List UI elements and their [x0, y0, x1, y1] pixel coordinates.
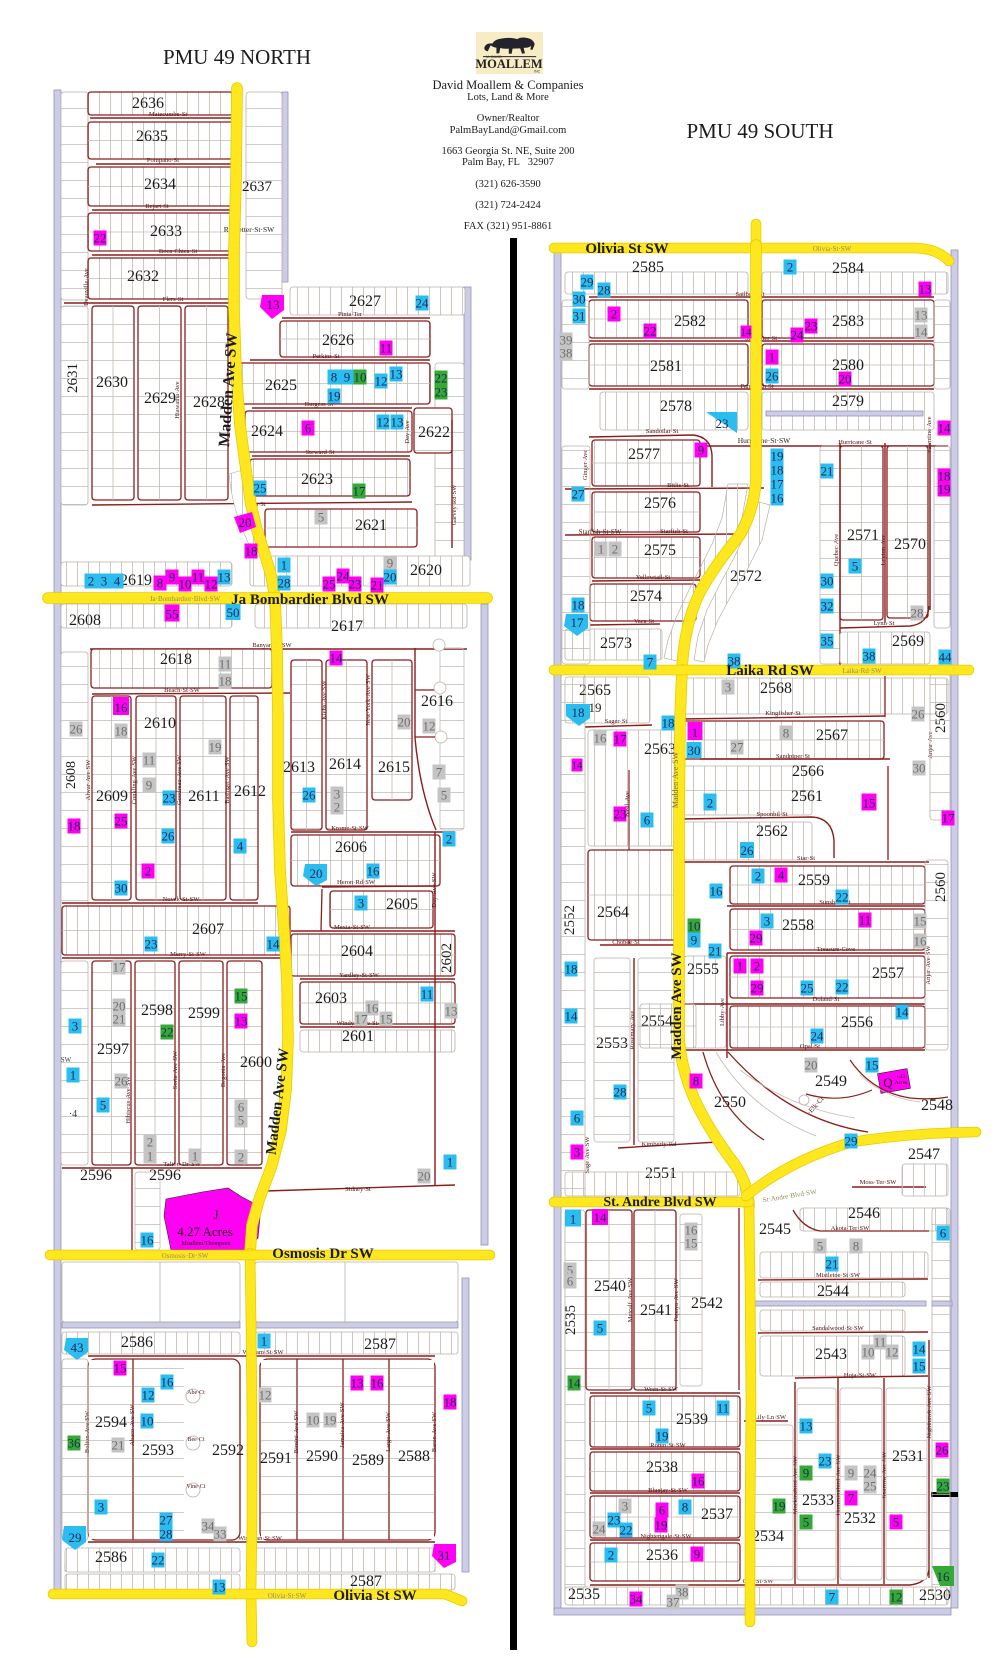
svg-text:30: 30	[913, 760, 926, 775]
svg-text:16: 16	[161, 1374, 175, 1389]
svg-text:2: 2	[147, 1134, 154, 1149]
svg-text:28: 28	[614, 1084, 627, 1099]
svg-text:16: 16	[371, 1375, 385, 1390]
svg-text:Papaya·Ave·SW: Papaya·Ave·SW	[673, 1278, 680, 1322]
svg-text:26: 26	[741, 843, 755, 858]
svg-text:14: 14	[938, 420, 952, 435]
svg-text:29: 29	[751, 980, 764, 995]
svg-text:2582: 2582	[674, 313, 706, 330]
svg-text:26: 26	[912, 706, 926, 721]
svg-text:2586: 2586	[95, 1549, 127, 1566]
svg-text:2556: 2556	[841, 1014, 873, 1031]
svg-text:16: 16	[366, 1000, 380, 1015]
svg-text:2637: 2637	[242, 179, 273, 195]
svg-text:10: 10	[688, 918, 701, 933]
svg-text:20: 20	[418, 1168, 431, 1183]
svg-text:29: 29	[750, 930, 763, 945]
svg-text:27: 27	[572, 486, 586, 501]
svg-text:2: 2	[612, 541, 619, 556]
svg-text:8: 8	[693, 1073, 700, 1088]
svg-text:15: 15	[114, 1360, 127, 1375]
svg-text:2578: 2578	[660, 398, 692, 415]
svg-text:2590: 2590	[306, 1448, 338, 1465]
svg-text:·4: ·4	[69, 1109, 77, 1120]
svg-text:1: 1	[570, 1211, 577, 1226]
svg-text:2545: 2545	[759, 1221, 791, 1238]
svg-text:14: 14	[741, 326, 753, 338]
svg-text:Ja·Bombardier·Blvd·SW: Ja·Bombardier·Blvd·SW	[150, 595, 221, 603]
svg-text:2549: 2549	[815, 1073, 847, 1090]
svg-text:4: 4	[237, 838, 244, 853]
svg-text:29: 29	[581, 274, 594, 289]
svg-text:13: 13	[267, 297, 280, 312]
svg-text:5: 5	[803, 1514, 810, 1529]
svg-text:Acres: Acres	[895, 1080, 908, 1086]
svg-text:9: 9	[848, 1465, 855, 1480]
svg-text:1: 1	[692, 725, 699, 740]
svg-text:2557: 2557	[872, 965, 904, 982]
svg-text:Wren·St·SW: Wren·St·SW	[644, 1386, 679, 1393]
svg-text:11: 11	[192, 569, 205, 584]
svg-text:2603: 2603	[315, 990, 347, 1007]
svg-text:Bee·Ct: Bee·Ct	[188, 1437, 205, 1443]
svg-text:8: 8	[783, 725, 790, 740]
svg-text:Leyton·Ave: Leyton·Ave	[880, 534, 887, 565]
svg-text:14: 14	[330, 650, 344, 665]
svg-text:17: 17	[614, 731, 628, 746]
svg-text:2621: 2621	[355, 517, 387, 534]
svg-text:6: 6	[659, 1502, 666, 1517]
svg-text:MOALLEM: MOALLEM	[475, 57, 543, 71]
svg-text:Sandpiper·St: Sandpiper·St	[776, 753, 810, 760]
svg-text:Jamaica·Ave·SW: Jamaica·Ave·SW	[339, 1401, 346, 1447]
svg-text:Hiawatha·Ave: Hiawatha·Ave	[174, 381, 181, 419]
svg-text:13: 13	[351, 1375, 364, 1390]
svg-text:2632: 2632	[127, 268, 159, 285]
svg-text:Abe·Ct: Abe·Ct	[187, 1390, 205, 1396]
svg-text:19: 19	[324, 1412, 337, 1427]
svg-text:2608: 2608	[69, 612, 101, 629]
svg-text:31: 31	[573, 308, 586, 323]
svg-text:26: 26	[115, 1073, 129, 1088]
svg-text:2589: 2589	[352, 1452, 384, 1469]
svg-text:18: 18	[444, 1394, 457, 1409]
svg-text:St. Andre Blvd SW: St. Andre Blvd SW	[603, 1195, 716, 1210]
svg-text:2539: 2539	[676, 1411, 708, 1428]
svg-text:Libby·Ave: Libby·Ave	[719, 998, 726, 1026]
svg-text:Opal·St: Opal·St	[800, 1043, 820, 1050]
svg-text:24: 24	[416, 295, 430, 310]
svg-text:2575: 2575	[644, 542, 676, 559]
svg-text:26: 26	[162, 828, 176, 843]
svg-text:12: 12	[142, 1387, 155, 1402]
svg-text:19: 19	[771, 448, 784, 463]
svg-text:3: 3	[358, 895, 365, 910]
svg-text:2541: 2541	[640, 1302, 672, 1319]
svg-text:2532: 2532	[844, 1510, 876, 1527]
svg-text:New·York·Ave·SW: New·York·Ave·SW	[365, 673, 372, 725]
svg-text:19: 19	[656, 1428, 669, 1443]
svg-text:5: 5	[597, 1320, 604, 1335]
svg-text:13: 13	[213, 1579, 226, 1594]
svg-text:2602: 2602	[439, 943, 455, 973]
svg-text:2599: 2599	[188, 1005, 220, 1022]
svg-text:Laika Rd SW: Laika Rd SW	[726, 663, 814, 679]
svg-text:14: 14	[594, 1210, 608, 1225]
svg-text:16: 16	[692, 1473, 706, 1488]
svg-text:Bluejay·St·SW: Bluejay·St·SW	[648, 1487, 689, 1494]
svg-text:25: 25	[254, 480, 267, 495]
svg-text:2: 2	[707, 795, 714, 810]
svg-text:16: 16	[914, 933, 928, 948]
svg-text:Sidney·St: Sidney·St	[345, 1186, 371, 1193]
svg-text:2581: 2581	[650, 358, 682, 375]
svg-text:22: 22	[435, 370, 448, 385]
svg-text:18: 18	[771, 462, 784, 477]
svg-text:2620: 2620	[410, 562, 442, 579]
svg-text:13: 13	[235, 1013, 248, 1028]
svg-text:2: 2	[754, 958, 761, 973]
svg-text:Palm Bay, FL 32907: Palm Bay, FL 32907	[462, 157, 554, 168]
svg-text:3: 3	[622, 1498, 629, 1513]
svg-text:12: 12	[886, 1344, 899, 1359]
svg-text:19: 19	[328, 388, 341, 403]
svg-text:Spoonbil·St: Spoonbil·St	[756, 811, 787, 818]
svg-text:2598: 2598	[141, 1002, 173, 1019]
svg-text:38: 38	[863, 648, 876, 663]
svg-text:18: 18	[565, 961, 578, 976]
svg-text:16: 16	[937, 1569, 951, 1584]
svg-text:Yellowtail·St: Yellowtail·St	[636, 574, 671, 581]
svg-text:28: 28	[160, 1526, 173, 1541]
svg-text:19: 19	[209, 739, 222, 754]
svg-text:5: 5	[852, 558, 859, 573]
svg-text:43: 43	[71, 1340, 84, 1355]
svg-text:33: 33	[214, 1526, 227, 1541]
svg-text:13: 13	[390, 366, 403, 381]
svg-text:2610: 2610	[144, 715, 176, 732]
svg-text:Metcalf·Ave·SW: Metcalf·Ave·SW	[627, 1277, 634, 1323]
svg-text:Olivia St SW: Olivia St SW	[333, 1588, 416, 1604]
svg-text:15: 15	[380, 1011, 393, 1026]
svg-text:2624: 2624	[251, 423, 283, 440]
svg-text:2570: 2570	[894, 536, 926, 553]
svg-text:2593: 2593	[142, 1442, 174, 1459]
svg-text:10: 10	[179, 576, 192, 591]
svg-text:15: 15	[685, 1235, 698, 1250]
svg-text:Merry·St·SW: Merry·St·SW	[170, 951, 207, 958]
svg-text:2619: 2619	[120, 572, 152, 589]
svg-text:2564: 2564	[597, 904, 629, 921]
svg-text:55: 55	[166, 606, 179, 621]
svg-text:9: 9	[387, 555, 394, 570]
svg-text:Madden·Ave·SW: Madden·Ave·SW	[671, 751, 680, 808]
svg-text:23: 23	[819, 1453, 832, 1468]
svg-text:Nightengale·St·SW: Nightengale·St·SW	[640, 1533, 692, 1540]
svg-text:8: 8	[331, 369, 338, 384]
svg-text:Steward·St: Steward·St	[306, 449, 335, 456]
svg-text:2542: 2542	[691, 1295, 723, 1312]
svg-text:Krome·St·SW: Krome·St·SW	[331, 825, 369, 832]
svg-text:2537: 2537	[701, 1506, 733, 1523]
svg-text:38: 38	[560, 345, 573, 360]
svg-text:5: 5	[893, 1514, 900, 1529]
svg-text:2634: 2634	[144, 176, 176, 193]
svg-text:David Moallem & Companies: David Moallem & Companies	[432, 78, 583, 92]
svg-text:2608: 2608	[64, 761, 79, 789]
svg-text:29: 29	[845, 1133, 858, 1148]
svg-text:2546: 2546	[848, 1205, 880, 1222]
svg-text:5: 5	[817, 1238, 824, 1253]
svg-text:1: 1	[261, 1333, 268, 1348]
svg-text:Boca·Chica·St: Boca·Chica·St	[159, 248, 197, 255]
svg-text:Moss·Ter·SW: Moss·Ter·SW	[860, 1179, 898, 1186]
svg-text:Pinta·Ter: Pinta·Ter	[338, 311, 363, 318]
svg-text:2: 2	[608, 1547, 615, 1562]
svg-text:Owner/Realtor: Owner/Realtor	[477, 113, 540, 124]
svg-text:4: 4	[778, 867, 785, 882]
svg-text:2562: 2562	[756, 823, 788, 840]
svg-text:1: 1	[281, 557, 288, 572]
svg-text:Bitlis·St: Bitlis·St	[667, 482, 689, 489]
svg-text:20: 20	[310, 866, 323, 881]
svg-text:2597: 2597	[97, 1041, 129, 1058]
svg-text:21: 21	[821, 463, 834, 478]
svg-text:Flers·St: Flers·St	[163, 296, 184, 303]
svg-text:9: 9	[698, 442, 705, 457]
svg-text:2591: 2591	[260, 1450, 292, 1467]
svg-text:2560: 2560	[933, 872, 949, 902]
svg-text:Mistletoe·St·SW: Mistletoe·St·SW	[816, 1272, 861, 1279]
svg-text:2604: 2604	[341, 943, 373, 960]
svg-text:22: 22	[836, 979, 849, 994]
svg-text:28: 28	[278, 575, 291, 590]
svg-text:23: 23	[163, 790, 176, 805]
svg-text:Alwar·Ave·SW: Alwar·Ave·SW	[85, 759, 92, 801]
svg-text:10: 10	[862, 1344, 875, 1359]
svg-text:J: J	[213, 1207, 218, 1222]
svg-text:1: 1	[737, 958, 744, 973]
svg-text:11: 11	[380, 340, 393, 355]
svg-text:35: 35	[821, 633, 834, 648]
svg-text:30: 30	[115, 880, 128, 895]
svg-text:11: 11	[859, 912, 872, 927]
svg-text:12: 12	[205, 576, 218, 591]
svg-text:Vine·Ct: Vine·Ct	[187, 1484, 206, 1490]
svg-text:Abaco·Ave·SW: Abaco·Ave·SW	[129, 1403, 136, 1445]
svg-text:1: 1	[147, 1148, 154, 1163]
svg-text:22: 22	[836, 889, 849, 904]
svg-text:14: 14	[913, 1341, 927, 1356]
svg-text:7: 7	[436, 764, 443, 779]
svg-text:15: 15	[914, 913, 927, 928]
svg-text:2: 2	[787, 259, 794, 274]
svg-text:2573: 2573	[600, 635, 632, 652]
svg-text:14: 14	[896, 1004, 910, 1019]
svg-text:36: 36	[68, 1435, 82, 1450]
svg-text:Beach·St·SW: Beach·St·SW	[164, 687, 201, 694]
svg-text:15: 15	[913, 1358, 926, 1373]
svg-text:2617: 2617	[331, 618, 363, 635]
svg-text:Hurricane·St·SW: Hurricane·St·SW	[738, 436, 791, 445]
svg-text:2536: 2536	[646, 1547, 678, 1564]
svg-text:22: 22	[152, 1552, 165, 1567]
svg-text:2592: 2592	[212, 1442, 244, 1459]
svg-text:20: 20	[398, 714, 411, 729]
svg-text:Deauville·Ave: Deauville·Ave	[83, 268, 90, 306]
svg-text:22: 22	[644, 323, 657, 338]
svg-text:Novak·St·SW: Novak·St·SW	[163, 896, 201, 903]
svg-text:9: 9	[169, 569, 176, 584]
svg-text:24: 24	[593, 1521, 607, 1536]
svg-text:19: 19	[773, 1498, 786, 1513]
svg-text:16: 16	[710, 883, 724, 898]
svg-text:25: 25	[323, 576, 336, 591]
svg-text:24: 24	[811, 1028, 825, 1043]
svg-text:2630: 2630	[96, 374, 128, 391]
svg-text:Lily·Ln·SW: Lily·Ln·SW	[754, 1414, 787, 1421]
svg-text:Soria·Ave·SW: Soria·Ave·SW	[172, 1050, 179, 1089]
svg-text:2567: 2567	[816, 727, 848, 744]
svg-text:16: 16	[141, 1232, 155, 1247]
svg-text:Yardley·St·SW: Yardley·St·SW	[339, 972, 380, 979]
svg-text:21: 21	[826, 1256, 839, 1271]
svg-text:6: 6	[305, 420, 312, 435]
svg-text:2601: 2601	[342, 1028, 374, 1045]
svg-text:Lots, Land & More: Lots, Land & More	[467, 92, 549, 103]
svg-text:2: 2	[446, 831, 453, 846]
svg-text:Sandalwood·St·SW: Sandalwood·St·SW	[812, 1325, 865, 1332]
svg-text:3: 3	[72, 1018, 79, 1033]
svg-text:2559: 2559	[798, 872, 830, 889]
svg-text:Conkling·Ave·SW: Conkling·Ave·SW	[131, 755, 138, 804]
svg-text:2607: 2607	[192, 921, 224, 938]
svg-text:14: 14	[565, 1008, 579, 1023]
svg-text:10: 10	[307, 1412, 320, 1427]
svg-text:5: 5	[238, 1112, 245, 1127]
svg-text:21: 21	[113, 1011, 126, 1026]
svg-text:17: 17	[113, 959, 127, 974]
svg-text:6: 6	[644, 812, 651, 827]
svg-text:11: 11	[143, 752, 156, 767]
svg-text:18: 18	[68, 818, 81, 833]
svg-text:2579: 2579	[832, 393, 864, 410]
svg-text:PMU 49 NORTH: PMU 49 NORTH	[163, 45, 311, 69]
svg-text:20: 20	[805, 1057, 818, 1072]
svg-text:Olivia·St·SW: Olivia·St·SW	[268, 1592, 307, 1600]
svg-text:2585: 2585	[632, 259, 664, 276]
svg-text:8: 8	[157, 575, 164, 590]
svg-text:20: 20	[839, 371, 852, 386]
svg-text:2535: 2535	[568, 1586, 600, 1603]
svg-text:Q: Q	[883, 1075, 893, 1090]
svg-text:2535: 2535	[563, 1305, 579, 1335]
svg-text:8: 8	[853, 1238, 860, 1253]
svg-text:12: 12	[423, 718, 436, 733]
svg-text:21: 21	[112, 1437, 125, 1452]
svg-text:2613: 2613	[283, 759, 315, 776]
svg-text:Matecumbe·St: Matecumbe·St	[149, 111, 187, 118]
svg-text:17: 17	[355, 1011, 369, 1026]
svg-text:INC: INC	[534, 70, 541, 74]
svg-text:2600: 2600	[240, 1054, 272, 1071]
svg-text:7: 7	[848, 1490, 855, 1505]
svg-text:11: 11	[421, 986, 434, 1001]
svg-text:Basinger·Ave·SW: Basinger·Ave·SW	[224, 755, 231, 803]
svg-text:Osmosis·Dr·SW: Osmosis·Dr·SW	[162, 1252, 209, 1260]
svg-text:2588: 2588	[398, 1448, 430, 1465]
svg-text:7: 7	[829, 1589, 836, 1604]
svg-text:19: 19	[655, 1517, 668, 1532]
svg-text:2633: 2633	[150, 223, 182, 240]
svg-text:4: 4	[114, 573, 121, 588]
svg-text:2614: 2614	[329, 756, 361, 773]
svg-text:17: 17	[353, 483, 367, 498]
svg-text:12: 12	[259, 1387, 272, 1402]
svg-text:12: 12	[375, 373, 388, 388]
svg-text:21: 21	[709, 943, 722, 958]
svg-text:Mexia·St·SW: Mexia·St·SW	[334, 924, 371, 931]
svg-text:14: 14	[267, 936, 281, 951]
svg-text:23: 23	[435, 384, 448, 399]
svg-text:Hurricane·St: Hurricane·St	[838, 439, 872, 446]
svg-text:1: 1	[70, 1067, 77, 1082]
svg-text:22: 22	[161, 1024, 174, 1039]
svg-text:11: 11	[219, 656, 232, 671]
svg-text:26: 26	[70, 721, 84, 736]
svg-text:3: 3	[764, 913, 771, 928]
svg-text:2: 2	[334, 799, 341, 814]
svg-text:15: 15	[235, 988, 248, 1003]
svg-text:4.27 Acres: 4.27 Acres	[177, 1224, 233, 1239]
svg-text:30: 30	[821, 573, 834, 588]
svg-text:5: 5	[441, 787, 448, 802]
svg-text:2616: 2616	[421, 693, 453, 710]
svg-text:Bimini·Ave·SW: Bimini·Ave·SW	[293, 1410, 300, 1453]
svg-text:Madden Ave SW: Madden Ave SW	[669, 952, 685, 1059]
svg-text:Chobee·St: Chobee·St	[612, 939, 640, 946]
svg-text:2558: 2558	[782, 917, 814, 934]
svg-text:Akota·Ter·SW: Akota·Ter·SW	[831, 1225, 870, 1232]
svg-text:15: 15	[866, 1057, 879, 1072]
svg-text:34: 34	[630, 1591, 644, 1606]
svg-text:10: 10	[354, 369, 367, 384]
svg-text:2605: 2605	[386, 896, 418, 913]
svg-text:Osmosis Dr SW: Osmosis Dr SW	[272, 1246, 373, 1262]
svg-text:Klebs·Ave·SW: Klebs·Ave·SW	[321, 679, 328, 719]
svg-text:12: 12	[377, 414, 390, 429]
svg-text:Largo·Ave·SW: Largo·Ave·SW	[385, 1411, 392, 1452]
svg-text:13: 13	[915, 307, 928, 322]
svg-text:Baron·Ave·SW: Baron·Ave·SW	[431, 1411, 438, 1452]
svg-text:19: 19	[589, 700, 602, 715]
svg-text:2586: 2586	[121, 1334, 153, 1351]
svg-text:2596: 2596	[80, 1167, 112, 1184]
svg-text:2612: 2612	[234, 783, 266, 800]
svg-text:2631: 2631	[65, 363, 81, 393]
svg-text:Doland·St: Doland·St	[813, 996, 840, 1003]
svg-text:Lynn·St: Lynn·St	[874, 620, 895, 627]
svg-text:Moallem/Thompson: Moallem/Thompson	[182, 1241, 231, 1247]
svg-text:9: 9	[803, 1465, 810, 1480]
svg-text:19: 19	[938, 481, 951, 496]
svg-text:Bejart·St: Bejart·St	[145, 203, 169, 210]
svg-text:18: 18	[662, 715, 675, 730]
svg-text:2547: 2547	[908, 1146, 940, 1163]
svg-text:17: 17	[942, 810, 956, 825]
svg-text:18: 18	[219, 673, 232, 688]
svg-text:23: 23	[716, 416, 729, 431]
